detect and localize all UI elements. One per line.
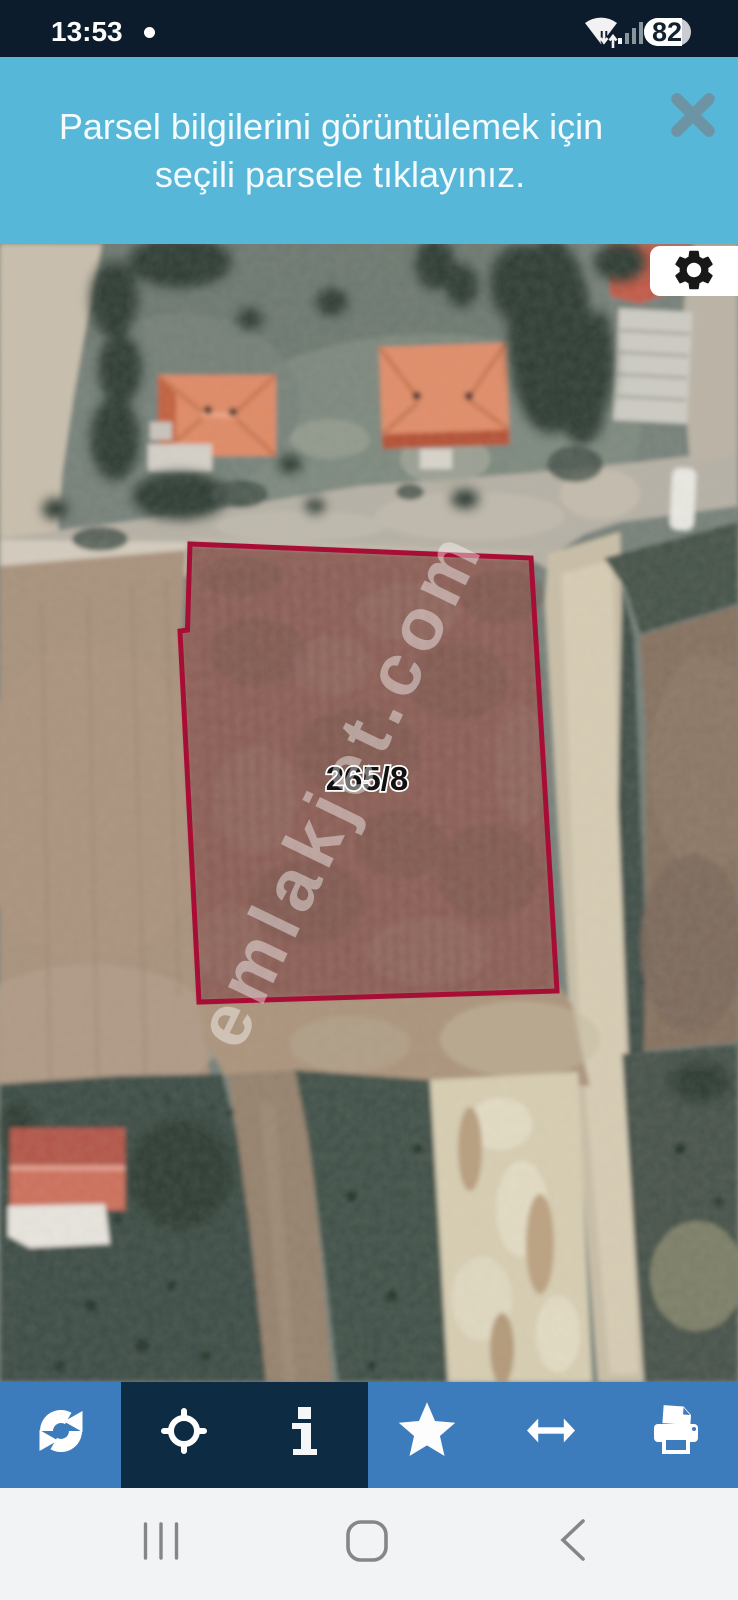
svg-text:82: 82 xyxy=(652,17,682,47)
